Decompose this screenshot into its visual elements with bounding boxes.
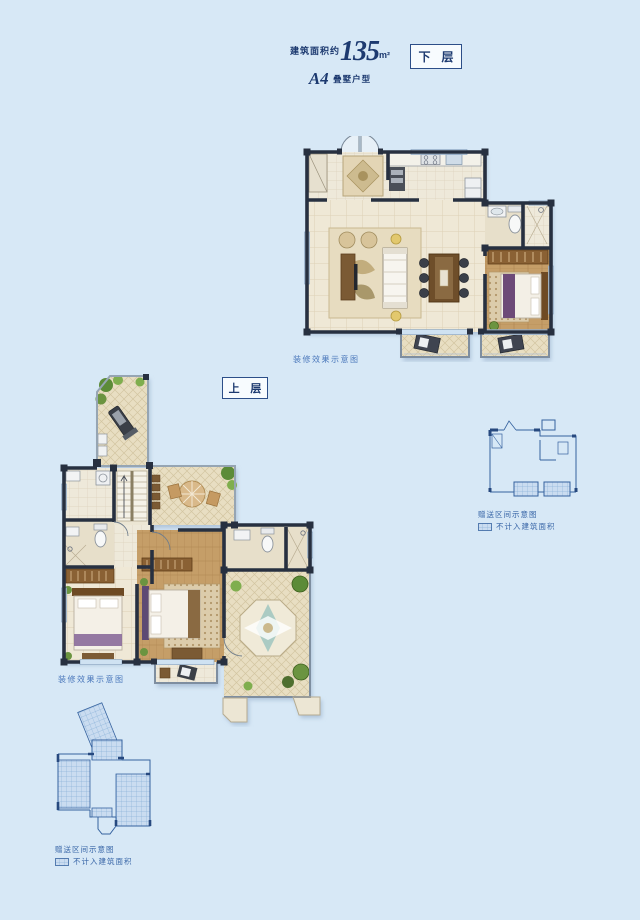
plant-icon xyxy=(244,682,253,691)
plant-icon xyxy=(282,676,294,688)
plant-icon xyxy=(490,322,499,331)
side-table xyxy=(391,234,401,244)
wardrobe xyxy=(488,250,548,264)
hatch-swatch-icon xyxy=(478,523,492,531)
pillow xyxy=(531,277,539,294)
pillow xyxy=(531,298,539,315)
legend-label: 不计入建筑面积 xyxy=(496,521,556,532)
toilet-icon xyxy=(509,215,521,233)
legend-label: 不计入建筑面积 xyxy=(73,856,133,867)
bed-bench xyxy=(82,653,114,659)
lower-floor-plan xyxy=(283,136,567,362)
bed-throw xyxy=(503,274,515,318)
hatched-area xyxy=(58,760,90,808)
foyer xyxy=(309,154,383,196)
keyplan-outline xyxy=(490,420,576,496)
bed-throw xyxy=(188,590,200,638)
page: 建筑面积约135m² A4 叠墅户型 下 层 上 层 xyxy=(0,0,640,920)
tv-icon xyxy=(354,264,358,290)
dining-chair xyxy=(419,288,428,297)
area-label: 建筑面积约 xyxy=(290,46,340,56)
keyplan-upper-note: 赠送区间示意图 xyxy=(55,844,115,855)
bed-throw xyxy=(74,634,122,646)
dining-area xyxy=(419,254,468,302)
tv-console xyxy=(341,254,355,300)
armchair-icon xyxy=(361,232,377,248)
dining-chair xyxy=(419,273,428,282)
bed-headboard xyxy=(72,588,124,596)
upper-plan-caption: 装修效果示意图 xyxy=(58,674,125,685)
ac-unit xyxy=(98,434,107,444)
pillow xyxy=(78,599,96,608)
staircase xyxy=(117,471,147,521)
bath-sink-icon xyxy=(234,530,250,540)
hatched-balcony xyxy=(544,482,570,496)
sink-icon xyxy=(446,155,462,165)
bed-headboard xyxy=(142,586,149,640)
plant-icon xyxy=(293,664,309,680)
side-table xyxy=(391,311,401,321)
utility-sink xyxy=(66,471,80,481)
plant-icon xyxy=(292,576,308,592)
wardrobe xyxy=(66,569,114,583)
plant-icon xyxy=(221,466,235,480)
lower-plan-caption: 装修效果示意图 xyxy=(293,354,360,365)
pillow xyxy=(151,616,161,634)
dresser xyxy=(172,648,202,659)
planter-box xyxy=(160,668,170,678)
bath-sink-icon xyxy=(66,527,79,536)
dining-chair xyxy=(459,273,468,282)
plant-icon xyxy=(140,578,148,586)
armchair-icon xyxy=(339,232,355,248)
toilet-icon xyxy=(95,531,106,547)
plant-icon xyxy=(231,581,242,592)
keyplan-lower xyxy=(478,412,588,506)
unit-line: A4 叠墅户型 xyxy=(255,69,425,89)
landing-step xyxy=(223,698,247,722)
plant-icon xyxy=(140,648,148,656)
hatch-swatch-icon xyxy=(55,858,69,866)
living-room xyxy=(329,228,421,321)
dining-chair xyxy=(459,288,468,297)
unit-code: A4 xyxy=(309,69,329,88)
lower-floor-tag: 下 层 xyxy=(410,44,462,69)
stove-icon xyxy=(421,155,440,165)
side-step xyxy=(293,697,320,715)
header: 建筑面积约135m² A4 叠墅户型 xyxy=(255,36,425,89)
keyplan-lower-note: 赠送区间示意图 xyxy=(478,509,538,520)
unit-type: 叠墅户型 xyxy=(333,74,371,84)
toilet-icon xyxy=(262,536,273,552)
keyplan-lower-legend: 不计入建筑面积 xyxy=(478,521,556,532)
keyplan-hatches xyxy=(58,703,150,826)
area-value: 135 xyxy=(340,36,379,67)
wardrobe xyxy=(142,558,192,571)
bedroom xyxy=(488,250,548,331)
pillow xyxy=(100,599,118,608)
dining-chair xyxy=(419,258,428,267)
dining-chair xyxy=(459,258,468,267)
sofa xyxy=(383,248,407,308)
hatched-balcony xyxy=(92,808,112,817)
bed-headboard xyxy=(541,272,548,320)
area-line: 建筑面积约135m² xyxy=(255,36,425,68)
hatched-roof-terrace xyxy=(116,774,150,826)
keyplan-upper-legend: 不计入建筑面积 xyxy=(55,856,133,867)
entry-door xyxy=(341,136,379,152)
keyplan-upper xyxy=(52,702,166,842)
pillow xyxy=(151,594,161,612)
hatched-terrace xyxy=(92,740,122,760)
ac-unit xyxy=(98,446,107,456)
area-unit: m² xyxy=(379,50,390,60)
hatched-balcony xyxy=(514,482,538,496)
washer-icon xyxy=(96,471,110,485)
